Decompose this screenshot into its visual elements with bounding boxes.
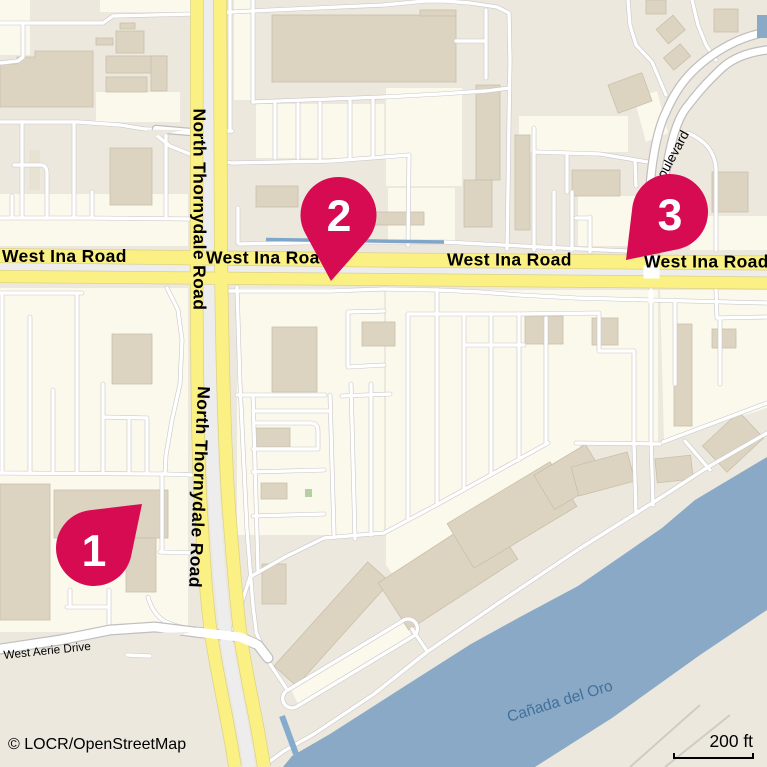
svg-text:3: 3 [658,191,683,240]
svg-text:1: 1 [82,527,107,576]
svg-text:West Ina Road: West Ina Road [644,252,767,272]
svg-text:West Ina Road: West Ina Road [447,250,572,270]
svg-text:West Ina Road: West Ina Road [206,248,331,268]
svg-text:West Ina Road: West Ina Road [2,246,127,266]
svg-text:2: 2 [327,192,352,241]
svg-text:North Thornydale Road: North Thornydale Road [190,109,210,311]
svg-text:© LOCR/OpenStreetMap: © LOCR/OpenStreetMap [8,736,186,753]
svg-text:200 ft: 200 ft [709,731,753,751]
